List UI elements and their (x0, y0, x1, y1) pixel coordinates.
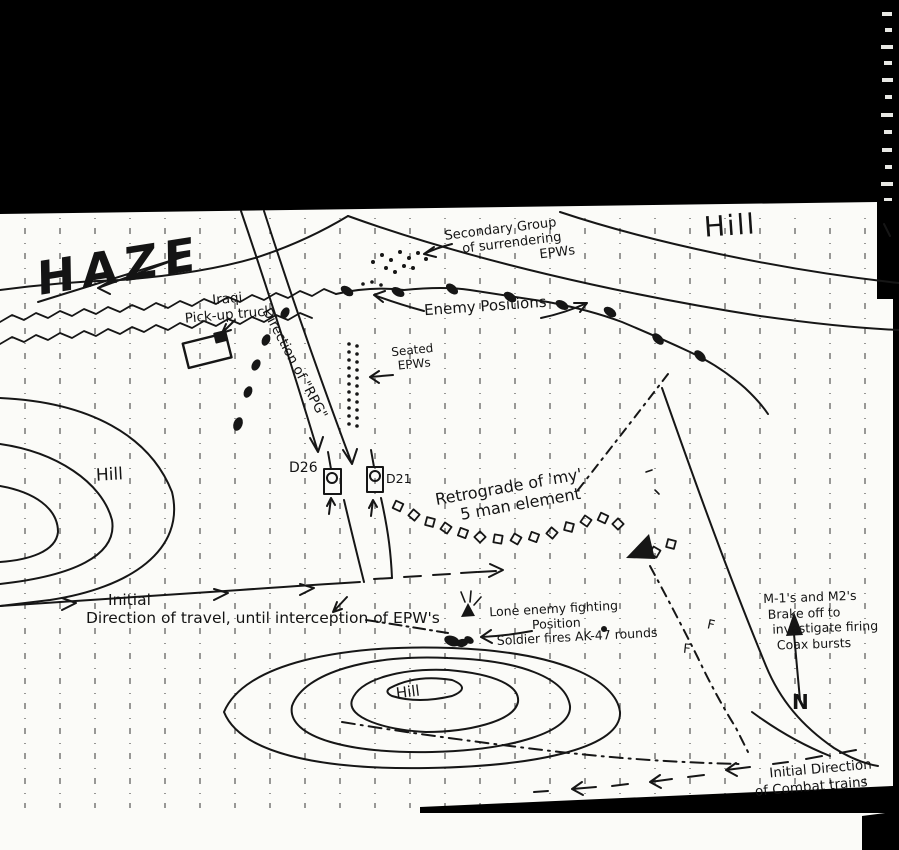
route-mark-f2-label: F (682, 643, 691, 659)
scanned-sketch-page: HAZE Hill Hill Hill Iraqi Pick-up truck … (0, 0, 899, 850)
lone-enemy-label: Lone enemy fighting Position Soldier fir… (489, 597, 658, 649)
binding-marks (881, 12, 893, 201)
initial-travel-label: Initial Direction of travel, until inter… (86, 591, 440, 627)
north-label: N (792, 691, 809, 714)
seated-epws-label: Seated EPWs (391, 341, 436, 373)
armor-breakoff-label: M-1's and M2's Brake off to investigate … (763, 587, 879, 653)
tank-d26-label: D26 (289, 460, 318, 476)
hill-north-label: Hill (703, 208, 758, 244)
hill-south-label: Hill (395, 683, 421, 703)
tank-d21-label: D21 (386, 472, 412, 486)
hill-west-label: Hill (96, 465, 124, 486)
sketch-drawing (0, 0, 899, 850)
